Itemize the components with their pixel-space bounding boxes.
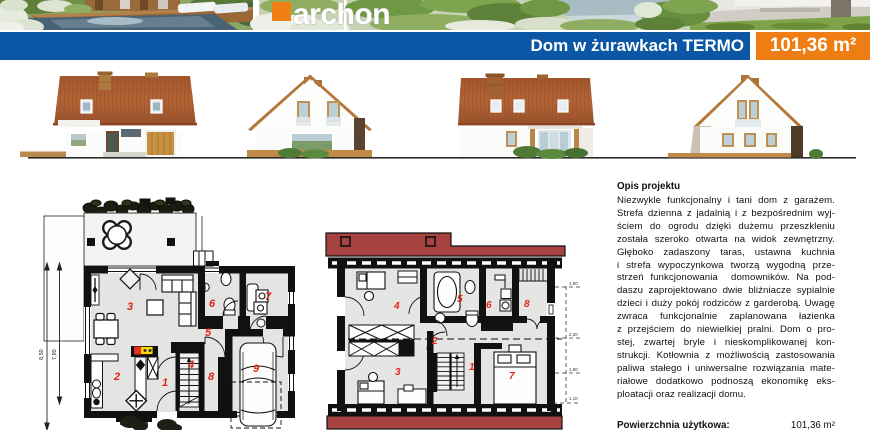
svg-text:7,90: 7,90 [52,349,58,360]
svg-text:1,90: 1,90 [569,367,578,372]
svg-text:4: 4 [187,359,194,371]
svg-text:2,20: 2,20 [569,332,578,337]
svg-text:2: 2 [113,371,120,383]
svg-text:7: 7 [509,371,515,382]
svg-text:8: 8 [208,371,215,383]
svg-text:3: 3 [127,301,133,313]
svg-text:9: 9 [253,363,260,375]
svg-text:8,50: 8,50 [39,349,45,360]
svg-text:1,10: 1,10 [569,396,578,401]
svg-text:6: 6 [209,298,216,310]
svg-text:3: 3 [395,367,401,378]
svg-text:7: 7 [265,291,272,303]
svg-text:5: 5 [205,327,212,339]
svg-text:archon: archon [293,0,390,30]
svg-text:1: 1 [469,362,475,373]
svg-text:1: 1 [162,377,168,389]
svg-text:4: 4 [393,301,400,312]
svg-text:6: 6 [486,300,492,311]
svg-text:5: 5 [457,294,463,305]
svg-text:2: 2 [431,336,438,347]
svg-text:1,90: 1,90 [569,281,578,286]
svg-text:8: 8 [524,299,530,310]
